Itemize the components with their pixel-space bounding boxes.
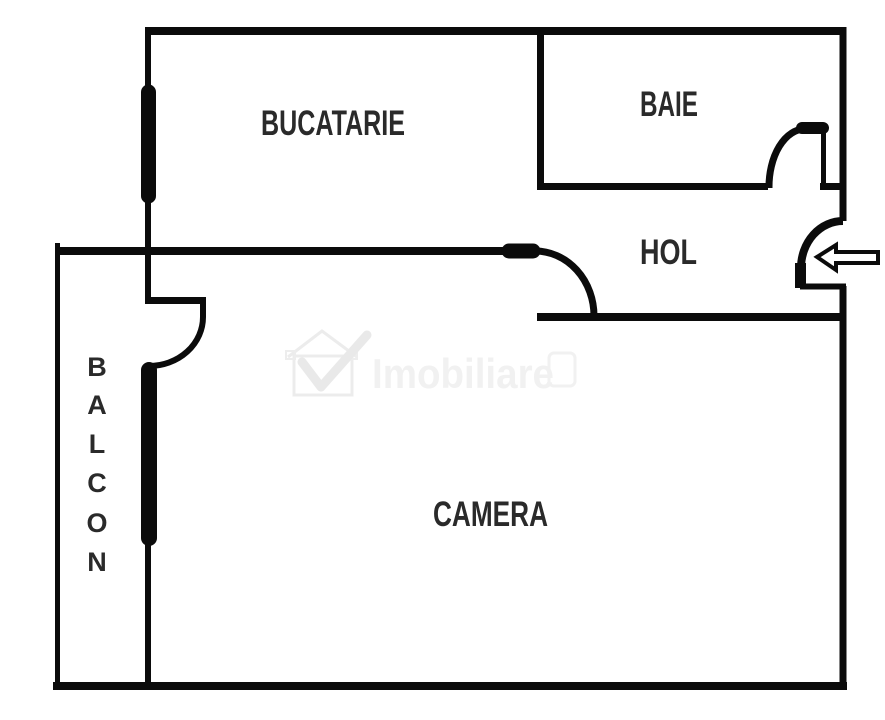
label-kitchen: BUCATARIE <box>261 104 405 143</box>
entrance-arrow-icon <box>817 245 878 270</box>
label-balcony-letter-b: B <box>87 352 107 382</box>
watermark-brand-text: Imobiliare <box>372 350 554 397</box>
label-balcony-letter-o: O <box>86 508 107 538</box>
floorplan-drawing: Imobiliare <box>0 0 885 720</box>
door-balcony-swing-arc <box>149 317 203 366</box>
label-living-room: CAMERA <box>433 495 548 534</box>
label-balcony-letter-a: A <box>87 390 107 420</box>
door-kitchen-swing-arc <box>535 251 594 316</box>
label-balcony: B A L C O N <box>86 352 107 577</box>
label-hallway: HOL <box>640 233 697 272</box>
label-balcony-letter-c: C <box>87 468 107 498</box>
label-balcony-letter-n: N <box>87 547 107 577</box>
door-bathroom-swing-arc <box>769 129 805 188</box>
floorplan: Imobiliare <box>0 0 885 720</box>
watermark-logo: Imobiliare <box>286 331 575 397</box>
label-balcony-letter-l: L <box>89 429 106 459</box>
label-bathroom: BAIE <box>640 85 698 124</box>
watermark-checkmark-icon <box>302 335 367 387</box>
